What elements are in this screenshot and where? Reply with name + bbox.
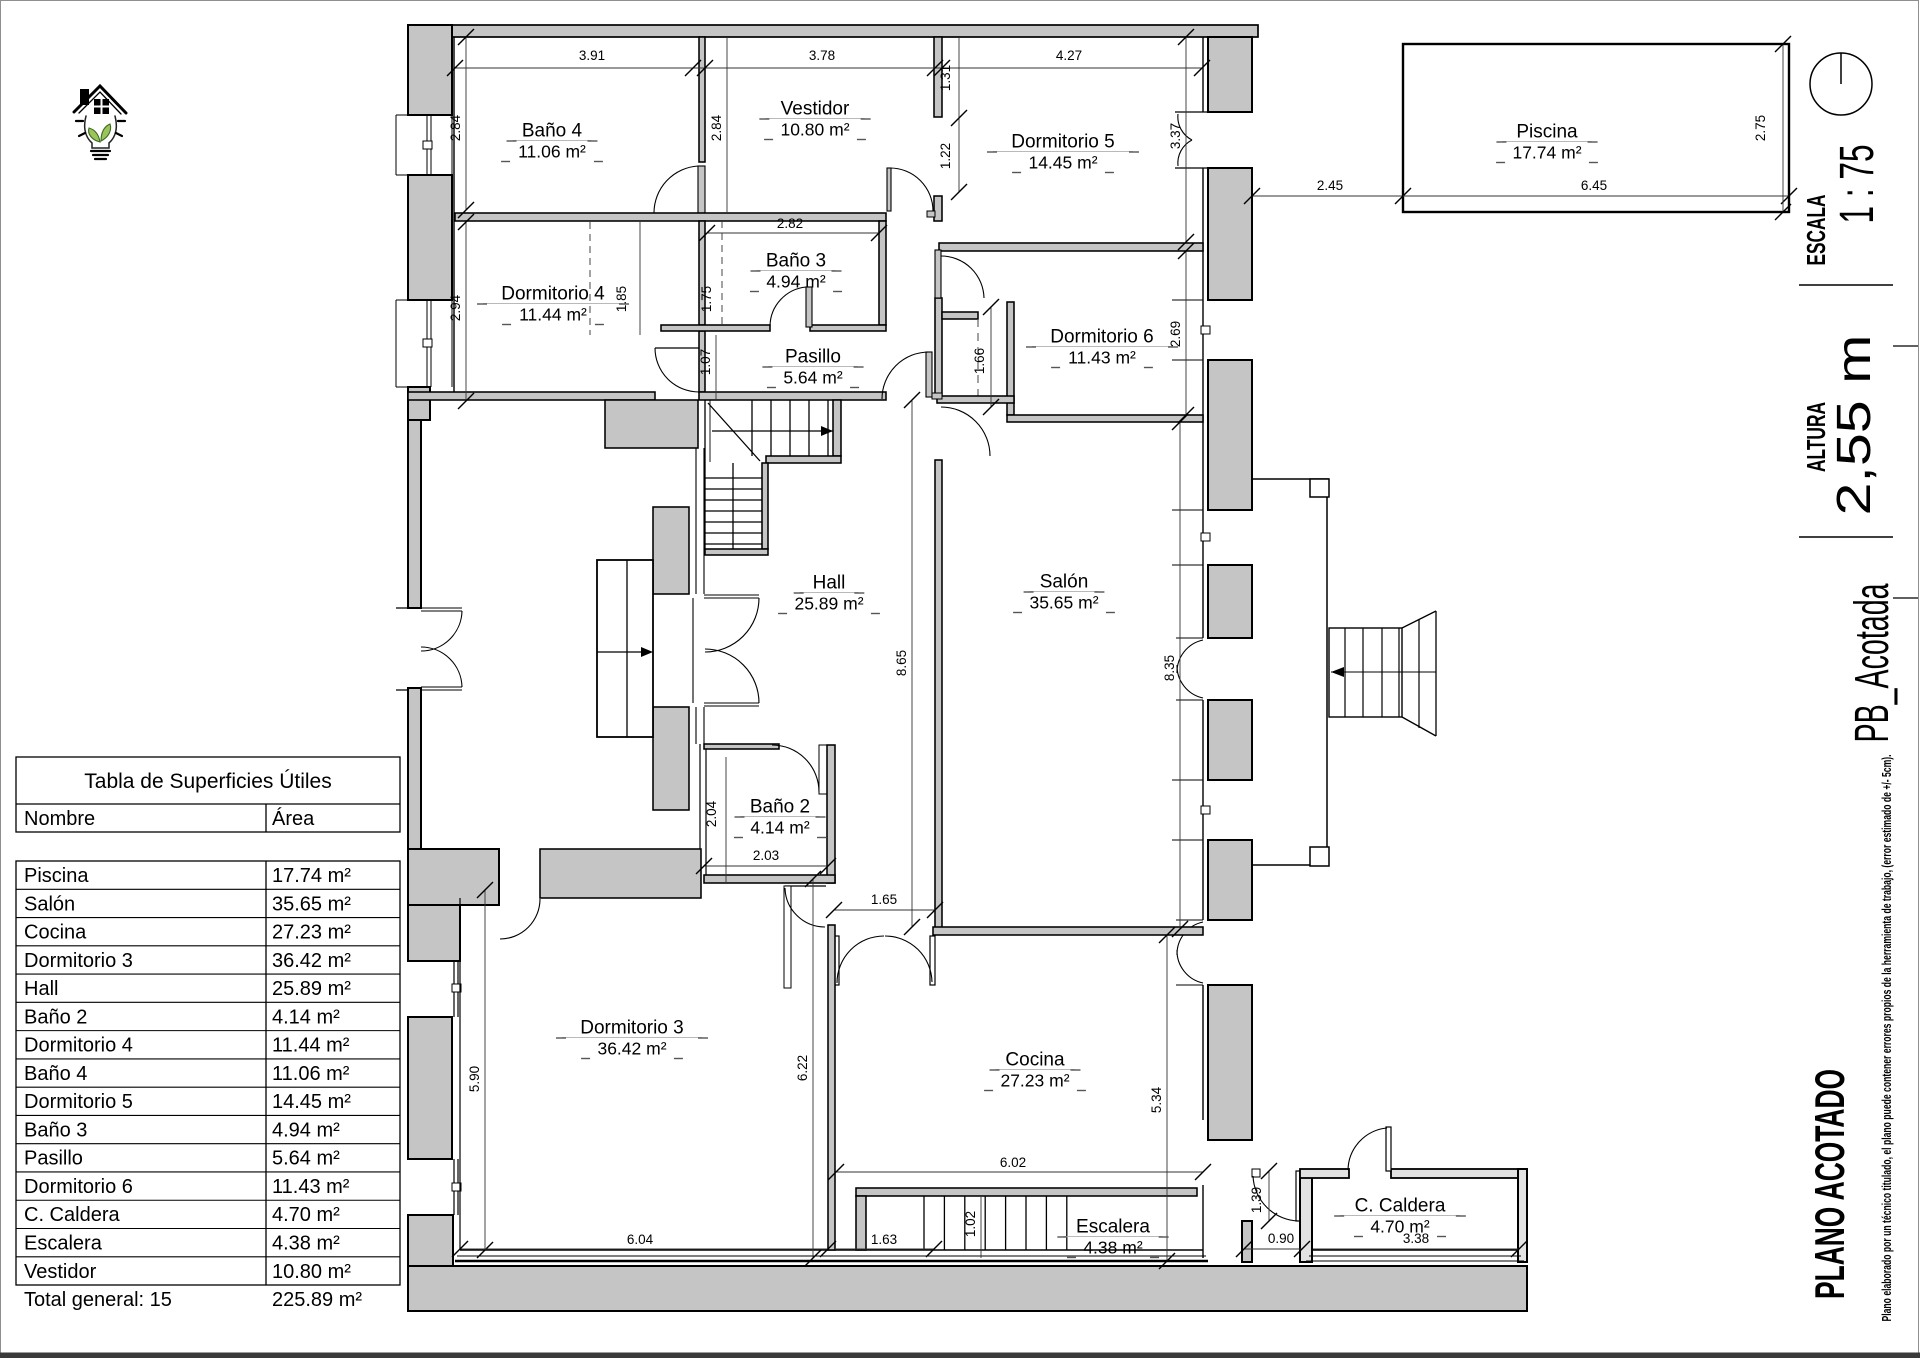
svg-text:C. Caldera: C. Caldera <box>24 1204 120 1226</box>
svg-text:Área: Área <box>272 807 315 830</box>
svg-text:Vestidor: Vestidor <box>24 1261 97 1283</box>
svg-text:Dormitorio 6: Dormitorio 6 <box>1050 327 1153 348</box>
svg-text:10.80 m²: 10.80 m² <box>272 1261 351 1283</box>
svg-text:Baño 3: Baño 3 <box>24 1119 87 1141</box>
svg-text:1.31: 1.31 <box>938 65 953 91</box>
svg-text:4.38 m²: 4.38 m² <box>1083 1238 1142 1258</box>
svg-text:11.06 m²: 11.06 m² <box>518 142 586 162</box>
svg-text:Baño 4: Baño 4 <box>522 121 583 142</box>
svg-text:4.38 m²: 4.38 m² <box>272 1233 340 1255</box>
svg-text:Hall: Hall <box>813 573 846 594</box>
svg-text:1.65: 1.65 <box>871 892 897 907</box>
svg-text:2.75: 2.75 <box>1753 115 1768 141</box>
svg-text:4.94 m²: 4.94 m² <box>766 272 825 292</box>
svg-text:Escalera: Escalera <box>24 1233 103 1255</box>
svg-text:1.39: 1.39 <box>1249 1187 1264 1213</box>
svg-text:Cocina: Cocina <box>24 922 87 944</box>
svg-text:Baño 2: Baño 2 <box>750 797 810 818</box>
svg-text:35.65 m²: 35.65 m² <box>1029 593 1098 613</box>
svg-text:1.85: 1.85 <box>614 286 629 312</box>
svg-text:2.69: 2.69 <box>1168 321 1183 347</box>
svg-text:2.04: 2.04 <box>704 800 719 827</box>
svg-text:1.75: 1.75 <box>699 286 714 312</box>
svg-text:Total general: 15: Total general: 15 <box>24 1289 172 1311</box>
svg-text:4.70 m²: 4.70 m² <box>272 1204 340 1226</box>
svg-text:Dormitorio 5: Dormitorio 5 <box>1011 132 1114 153</box>
svg-text:6.04: 6.04 <box>627 1232 654 1247</box>
svg-text:Hall: Hall <box>24 978 58 1000</box>
svg-text:5.34: 5.34 <box>1149 1086 1164 1113</box>
svg-text:1.02: 1.02 <box>963 1211 978 1237</box>
svg-text:2.03: 2.03 <box>753 848 779 863</box>
svg-text:11.06 m²: 11.06 m² <box>272 1063 350 1085</box>
svg-text:4.27: 4.27 <box>1056 48 1082 63</box>
svg-text:Pasillo: Pasillo <box>785 347 841 368</box>
svg-text:1.66: 1.66 <box>972 348 987 374</box>
svg-text:Dormitorio 4: Dormitorio 4 <box>24 1035 133 1057</box>
svg-text:Nombre: Nombre <box>24 808 95 830</box>
svg-text:4.14 m²: 4.14 m² <box>750 818 809 838</box>
svg-text:Dormitorio 4: Dormitorio 4 <box>501 284 605 305</box>
svg-text:Plano elaborado por un técnico: Plano elaborado por un técnico titulado,… <box>1880 755 1894 1322</box>
svg-text:8.65: 8.65 <box>894 650 909 676</box>
svg-text:Dormitorio 3: Dormitorio 3 <box>24 950 133 972</box>
svg-text:14.45 m²: 14.45 m² <box>1028 153 1097 173</box>
svg-text:2.84: 2.84 <box>448 114 463 141</box>
svg-text:1.07: 1.07 <box>698 349 713 375</box>
svg-text:C. Caldera: C. Caldera <box>1355 1196 1446 1217</box>
svg-text:Baño 4: Baño 4 <box>24 1063 87 1085</box>
svg-text:Pasillo: Pasillo <box>24 1148 83 1170</box>
svg-text:2.45: 2.45 <box>1317 178 1343 193</box>
svg-text:3.37: 3.37 <box>1168 123 1183 149</box>
svg-text:36.42 m²: 36.42 m² <box>272 950 351 972</box>
svg-text:Piscina: Piscina <box>24 865 89 887</box>
svg-text:Piscina: Piscina <box>1516 122 1578 143</box>
svg-text:5.90: 5.90 <box>467 1066 482 1092</box>
svg-text:11.43 m²: 11.43 m² <box>1068 348 1136 368</box>
svg-text:Tabla de Superficies Útiles: Tabla de Superficies Útiles <box>84 770 331 793</box>
svg-text:2,55 m: 2,55 m <box>1828 335 1881 516</box>
svg-text:11.44 m²: 11.44 m² <box>272 1035 350 1057</box>
svg-text:2.84: 2.84 <box>709 114 724 141</box>
svg-text:Salón: Salón <box>24 893 75 915</box>
svg-text:27.23 m²: 27.23 m² <box>272 922 351 944</box>
svg-text:8.35: 8.35 <box>1162 655 1177 681</box>
svg-text:3.91: 3.91 <box>579 48 605 63</box>
svg-text:10.80 m²: 10.80 m² <box>780 120 849 140</box>
svg-text:Vestidor: Vestidor <box>781 99 850 120</box>
svg-text:1 : 75: 1 : 75 <box>1831 145 1884 224</box>
svg-text:5.64 m²: 5.64 m² <box>783 368 842 388</box>
svg-text:Escalera: Escalera <box>1076 1217 1150 1238</box>
svg-text:4.70 m²: 4.70 m² <box>1370 1217 1429 1237</box>
svg-text:6.22: 6.22 <box>795 1055 810 1081</box>
svg-text:35.65 m²: 35.65 m² <box>272 893 351 915</box>
svg-text:Dormitorio 5: Dormitorio 5 <box>24 1091 133 1113</box>
svg-text:Dormitorio 6: Dormitorio 6 <box>24 1176 133 1198</box>
svg-text:6.45: 6.45 <box>1581 178 1607 193</box>
svg-text:25.89 m²: 25.89 m² <box>272 978 351 1000</box>
svg-text:ESCALA: ESCALA <box>1801 194 1831 265</box>
svg-text:1.63: 1.63 <box>871 1232 897 1247</box>
svg-text:6.02: 6.02 <box>1000 1155 1026 1170</box>
svg-text:1.22: 1.22 <box>938 143 953 169</box>
svg-text:11.43 m²: 11.43 m² <box>272 1176 350 1198</box>
svg-text:2.94: 2.94 <box>448 294 463 321</box>
svg-text:2.82: 2.82 <box>777 216 803 231</box>
svg-text:4.94 m²: 4.94 m² <box>272 1119 340 1141</box>
svg-text:4.14 m²: 4.14 m² <box>272 1006 340 1028</box>
svg-text:14.45 m²: 14.45 m² <box>272 1091 351 1113</box>
svg-text:ALTURA: ALTURA <box>1801 402 1831 472</box>
svg-text:5.64 m²: 5.64 m² <box>272 1148 340 1170</box>
svg-text:25.89 m²: 25.89 m² <box>794 594 863 614</box>
svg-text:Baño 3: Baño 3 <box>766 251 826 272</box>
svg-text:Cocina: Cocina <box>1005 1050 1065 1071</box>
svg-text:225.89 m²: 225.89 m² <box>272 1289 362 1311</box>
svg-text:PB_Acotada: PB_Acotada <box>1846 583 1899 742</box>
svg-text:0.90: 0.90 <box>1268 1231 1294 1246</box>
svg-text:Dormitorio 3: Dormitorio 3 <box>580 1018 683 1039</box>
svg-text:36.42 m²: 36.42 m² <box>597 1039 666 1059</box>
svg-text:27.23 m²: 27.23 m² <box>1000 1071 1069 1091</box>
svg-text:3.78: 3.78 <box>809 48 835 63</box>
svg-text:17.74 m²: 17.74 m² <box>272 865 351 887</box>
svg-text:Salón: Salón <box>1040 572 1089 593</box>
svg-text:Baño 2: Baño 2 <box>24 1006 87 1028</box>
svg-text:PLANO ACOTADO: PLANO ACOTADO <box>1806 1069 1853 1299</box>
svg-text:11.44 m²: 11.44 m² <box>519 305 587 325</box>
svg-text:17.74 m²: 17.74 m² <box>1512 143 1581 163</box>
